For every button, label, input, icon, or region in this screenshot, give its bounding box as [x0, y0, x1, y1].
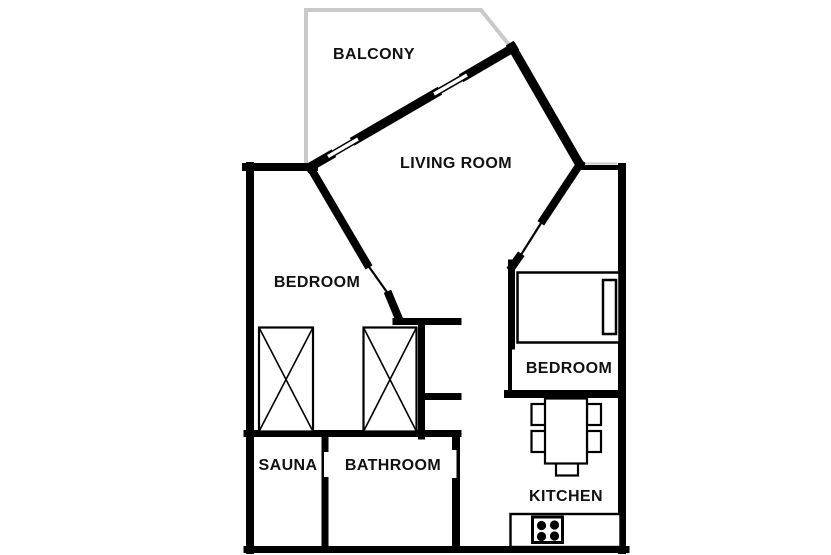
wardrobe-icon [259, 328, 313, 432]
chair-icon [587, 431, 601, 452]
sauna-label: SAUNA [259, 457, 318, 475]
bedroom-right-label: BEDROOM [526, 360, 612, 378]
pillow-icon [603, 280, 616, 334]
wardrobe-icon [364, 328, 417, 432]
kitchen-counter-icon [511, 514, 621, 547]
chair-icon [532, 404, 546, 425]
bedroom-left-label: BEDROOM [274, 274, 360, 292]
chair-icon [587, 404, 601, 425]
chair-icon [532, 431, 546, 452]
balcony-label: BALCONY [333, 46, 415, 64]
floor-plan: BALCONY LIVING ROOM BEDROOM BEDROOM SAUN… [0, 0, 831, 555]
table-icon [545, 399, 587, 464]
dining-table-icon [532, 399, 602, 476]
living-room-label: LIVING ROOM [400, 155, 512, 173]
kitchen-label: KITCHEN [529, 488, 603, 506]
bed-icon [518, 273, 620, 343]
bathroom-label: BATHROOM [345, 457, 441, 475]
stove-icon [533, 517, 563, 543]
